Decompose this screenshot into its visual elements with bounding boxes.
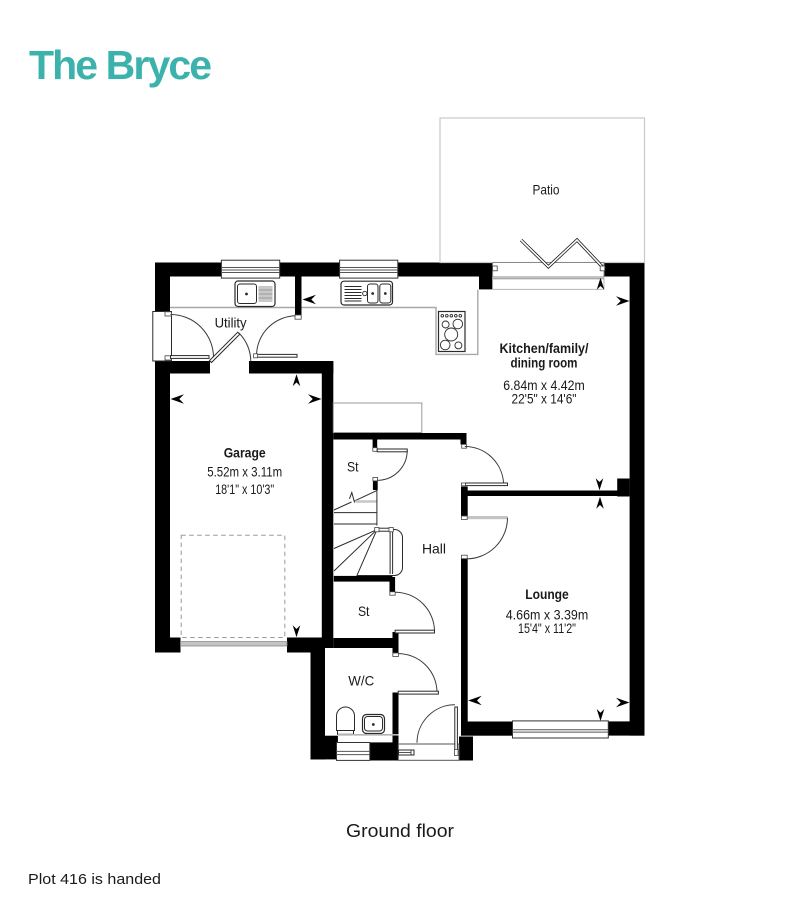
svg-text:Plot 416 is handed: Plot 416 is handed bbox=[28, 872, 161, 888]
svg-text:Patio: Patio bbox=[533, 183, 560, 198]
svg-text:Ground floor: Ground floor bbox=[346, 821, 454, 841]
svg-text:dining room: dining room bbox=[511, 355, 578, 371]
svg-text:St: St bbox=[347, 460, 359, 475]
svg-text:5.52m x 3.11m: 5.52m x 3.11m bbox=[207, 465, 282, 480]
svg-text:18'1" x 10'3": 18'1" x 10'3" bbox=[215, 482, 274, 497]
svg-text:Hall: Hall bbox=[422, 541, 446, 556]
svg-text:Utility: Utility bbox=[215, 315, 247, 330]
svg-text:15'4" x 11'2": 15'4" x 11'2" bbox=[518, 621, 576, 636]
svg-text:St: St bbox=[358, 604, 370, 619]
svg-text:22'5" x 14'6": 22'5" x 14'6" bbox=[512, 392, 577, 407]
svg-text:Garage: Garage bbox=[224, 444, 266, 460]
svg-text:The Bryce: The Bryce bbox=[29, 42, 211, 88]
svg-text:W/C: W/C bbox=[348, 673, 374, 688]
svg-text:Lounge: Lounge bbox=[525, 586, 569, 602]
